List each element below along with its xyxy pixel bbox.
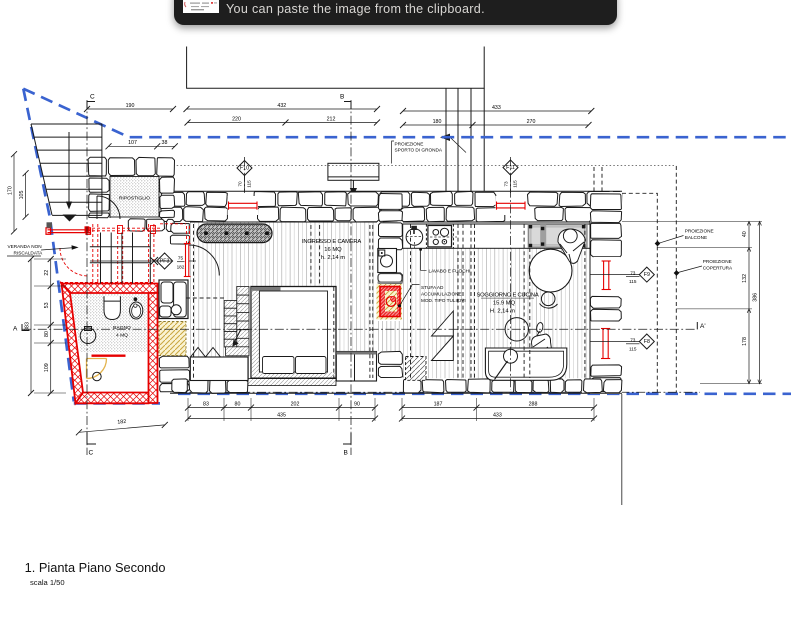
svg-text:115: 115 bbox=[247, 180, 252, 188]
svg-text:16 MQ: 16 MQ bbox=[324, 247, 342, 253]
svg-text:105: 105 bbox=[19, 191, 25, 200]
svg-text:BALCONE: BALCONE bbox=[685, 235, 707, 240]
svg-text:73: 73 bbox=[630, 338, 636, 343]
svg-text:h. 2,14 m: h. 2,14 m bbox=[321, 255, 345, 261]
svg-text:VERANDA NON: VERANDA NON bbox=[8, 244, 42, 249]
svg-text:4 MQ: 4 MQ bbox=[116, 333, 128, 339]
svg-text:182: 182 bbox=[177, 265, 185, 270]
svg-text:435: 435 bbox=[277, 412, 286, 418]
svg-text:115: 115 bbox=[629, 279, 637, 284]
svg-text:COPERTURA: COPERTURA bbox=[703, 266, 733, 271]
svg-text:433: 433 bbox=[493, 412, 502, 418]
svg-text:288: 288 bbox=[529, 401, 538, 407]
svg-text:F8: F8 bbox=[644, 339, 650, 345]
svg-text:132: 132 bbox=[742, 274, 748, 283]
svg-text:182: 182 bbox=[117, 419, 126, 426]
svg-text:BAGNO: BAGNO bbox=[113, 325, 131, 331]
svg-text:115: 115 bbox=[513, 180, 518, 188]
svg-text:170: 170 bbox=[8, 186, 14, 195]
svg-text:187: 187 bbox=[434, 401, 443, 407]
svg-text:40: 40 bbox=[742, 231, 748, 237]
svg-text:PROIEZIONE: PROIEZIONE bbox=[395, 142, 424, 147]
svg-text:73: 73 bbox=[630, 270, 636, 275]
svg-text:432: 432 bbox=[277, 103, 286, 109]
svg-text:MOD. TIPO TULIKIVI: MOD. TIPO TULIKIVI bbox=[421, 298, 466, 303]
svg-text:B: B bbox=[344, 450, 348, 457]
svg-text:53: 53 bbox=[44, 302, 50, 308]
svg-text:80: 80 bbox=[235, 401, 241, 407]
svg-text:1. Pianta Piano Secondo: 1. Pianta Piano Secondo bbox=[25, 560, 166, 575]
svg-text:270: 270 bbox=[527, 119, 536, 125]
svg-text:190: 190 bbox=[126, 103, 135, 109]
svg-text:SPORTO DI GRONDA: SPORTO DI GRONDA bbox=[395, 148, 443, 153]
svg-text:F11: F11 bbox=[506, 165, 515, 171]
svg-text:scala 1/50: scala 1/50 bbox=[30, 578, 65, 587]
svg-text:INGRESSO E CAMERA: INGRESSO E CAMERA bbox=[302, 239, 361, 245]
svg-text:15.9 MQ: 15.9 MQ bbox=[493, 301, 516, 307]
svg-text:38: 38 bbox=[162, 140, 168, 146]
svg-text:212: 212 bbox=[327, 116, 336, 122]
svg-text:STUFA AD: STUFA AD bbox=[421, 285, 444, 290]
svg-text:F9: F9 bbox=[644, 272, 650, 278]
svg-text:SOGGIORNO E CUCINA: SOGGIORNO E CUCINA bbox=[476, 293, 538, 299]
svg-text:PROIEZIONE: PROIEZIONE bbox=[685, 229, 714, 234]
svg-text:178: 178 bbox=[742, 337, 748, 346]
svg-text:115: 115 bbox=[629, 346, 637, 351]
svg-text:180: 180 bbox=[433, 119, 442, 125]
svg-text:220: 220 bbox=[232, 116, 241, 122]
svg-text:PROIEZIONE: PROIEZIONE bbox=[703, 259, 732, 264]
svg-text:F10: F10 bbox=[240, 165, 249, 171]
svg-text:75: 75 bbox=[178, 256, 184, 261]
svg-text:70: 70 bbox=[238, 181, 243, 187]
svg-text:A: A bbox=[13, 326, 18, 333]
svg-text:PF3: PF3 bbox=[160, 258, 170, 264]
svg-text:83: 83 bbox=[203, 401, 209, 407]
svg-text:H. 2,14 m: H. 2,14 m bbox=[490, 309, 515, 315]
svg-text:C: C bbox=[89, 450, 94, 457]
svg-text:73: 73 bbox=[504, 181, 509, 187]
svg-text:383: 383 bbox=[25, 322, 31, 331]
svg-text:90: 90 bbox=[354, 401, 360, 407]
svg-text:RIPOSTIGLIO: RIPOSTIGLIO bbox=[119, 196, 150, 202]
svg-text:ACCUMULAZIONE: ACCUMULAZIONE bbox=[421, 291, 462, 296]
svg-text:80: 80 bbox=[44, 331, 50, 337]
svg-text:109: 109 bbox=[44, 363, 50, 372]
svg-text:202: 202 bbox=[291, 401, 300, 407]
svg-text:C: C bbox=[90, 94, 95, 101]
svg-text:386: 386 bbox=[753, 293, 759, 302]
svg-text:A': A' bbox=[700, 323, 706, 330]
svg-text:B: B bbox=[340, 94, 344, 101]
svg-text:LAVABO E FUOCHI: LAVABO E FUOCHI bbox=[429, 268, 471, 273]
svg-text:22: 22 bbox=[44, 270, 50, 276]
svg-text:107: 107 bbox=[128, 140, 137, 146]
svg-text:433: 433 bbox=[492, 105, 501, 111]
svg-text:RISCALDATA: RISCALDATA bbox=[14, 251, 44, 256]
